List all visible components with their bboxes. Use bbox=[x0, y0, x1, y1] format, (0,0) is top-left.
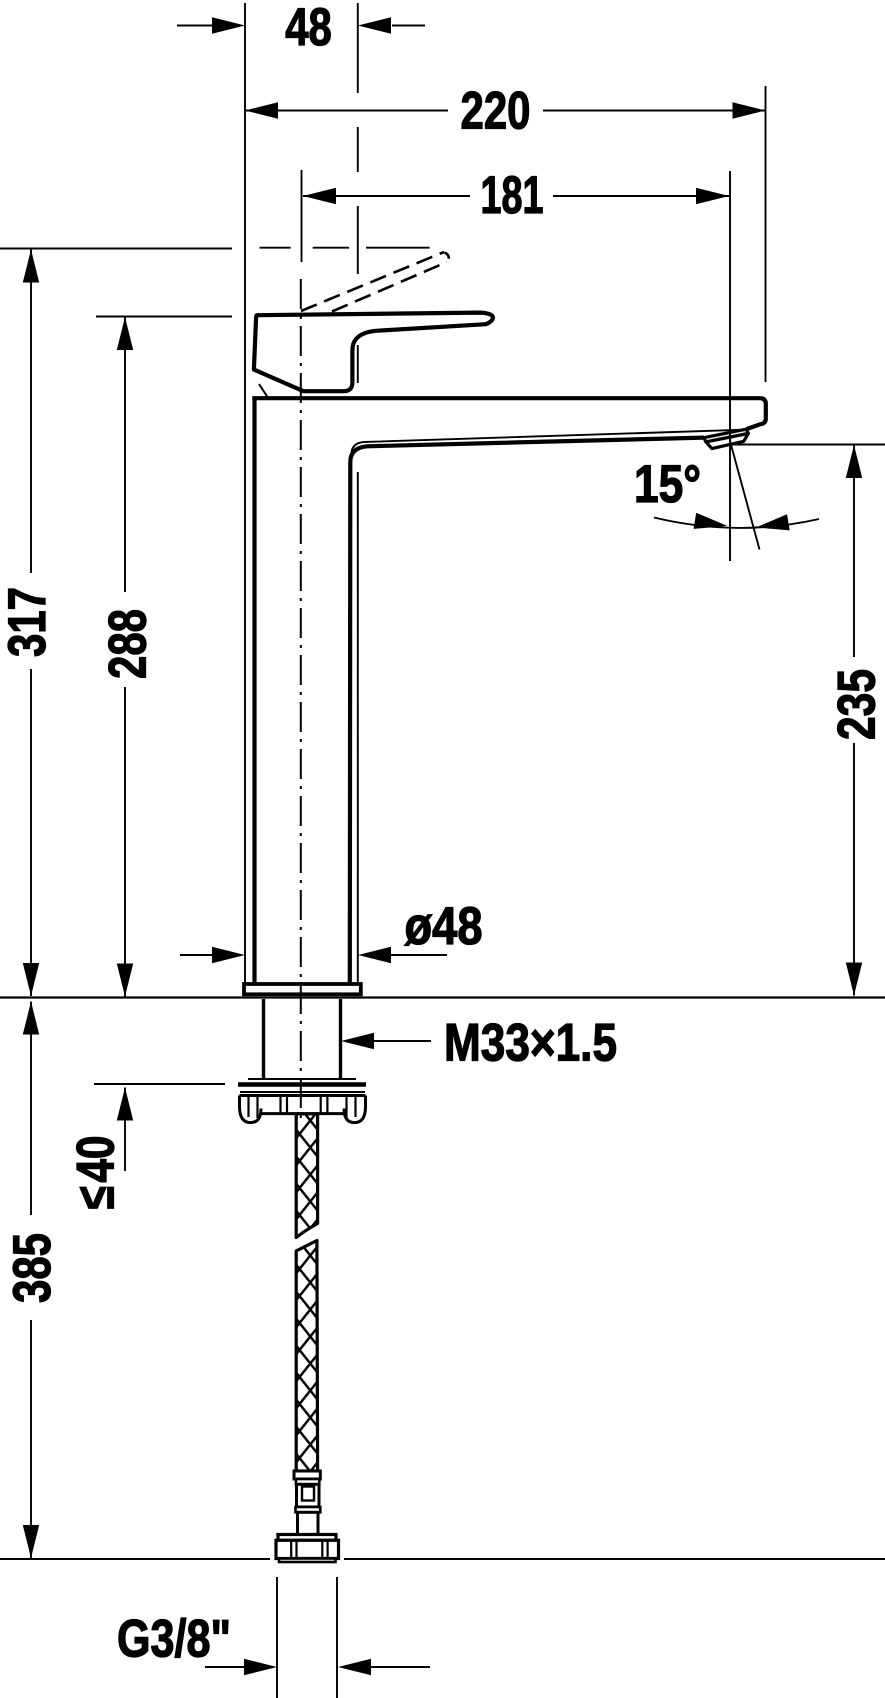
svg-text:ø48: ø48 bbox=[405, 897, 483, 956]
svg-text:M33×1.5: M33×1.5 bbox=[444, 1014, 617, 1073]
svg-text:≤ 40: ≤ 40 bbox=[67, 1136, 126, 1210]
svg-text:235: 235 bbox=[828, 669, 885, 740]
svg-text:G3/8": G3/8" bbox=[117, 1610, 231, 1669]
svg-text:181: 181 bbox=[481, 166, 544, 225]
svg-text:288: 288 bbox=[99, 609, 158, 679]
svg-text:317: 317 bbox=[0, 587, 57, 657]
svg-text:220: 220 bbox=[461, 82, 531, 141]
svg-text:48: 48 bbox=[285, 0, 332, 57]
svg-text:385: 385 bbox=[3, 1233, 62, 1303]
svg-text:15°: 15° bbox=[634, 455, 701, 514]
